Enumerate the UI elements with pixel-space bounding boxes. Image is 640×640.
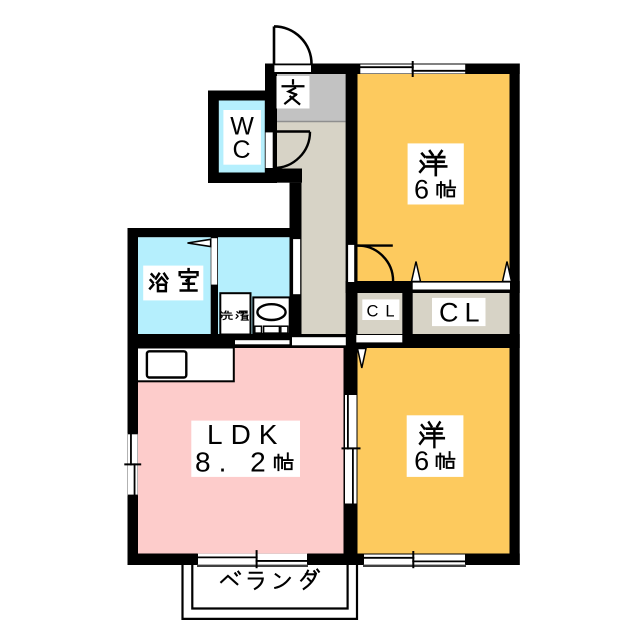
svg-text:CL: CL: [367, 303, 402, 321]
svg-text:C: C: [232, 136, 250, 164]
svg-text:8. 2: 8. 2: [195, 447, 274, 478]
svg-text:6: 6: [414, 175, 429, 205]
svg-text:6: 6: [414, 446, 429, 476]
svg-text:CL: CL: [439, 298, 486, 328]
svg-text:LDK: LDK: [207, 419, 285, 450]
